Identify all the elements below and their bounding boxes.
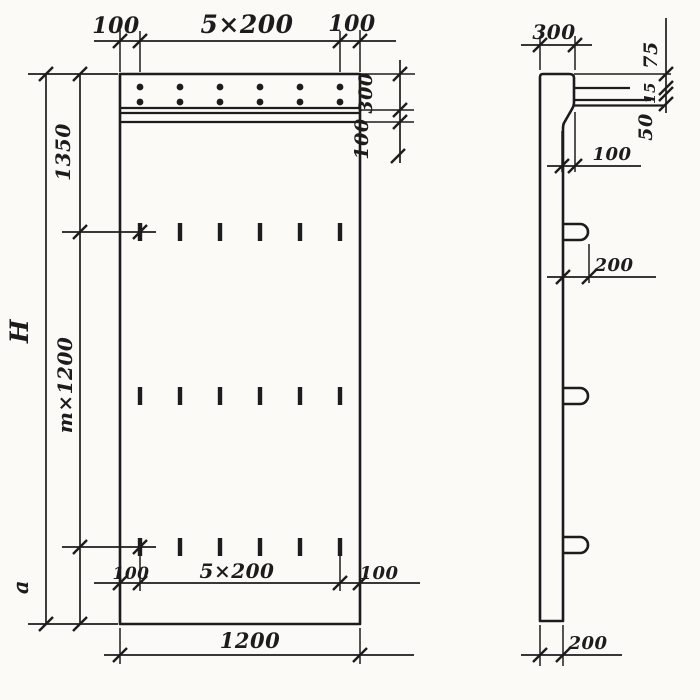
- slot: [298, 223, 302, 241]
- slot-row-1: [138, 223, 342, 241]
- front-view: 100 5×200 100 1350 m×1200 a H 300 100: [5, 10, 420, 664]
- dim-H: H: [5, 318, 34, 344]
- dim-a: a: [8, 580, 33, 594]
- anchor-dot: [297, 99, 304, 106]
- anchor-dot: [137, 99, 144, 106]
- dim-1200: 1200: [220, 628, 280, 653]
- dim-100-strip: 100: [351, 118, 373, 159]
- dim-ledge-100: 100: [592, 144, 631, 165]
- slot-row-2: [138, 387, 342, 405]
- dim-top-left: 100: [92, 13, 140, 39]
- dim-75: 75: [640, 41, 662, 68]
- dim-top-right: 100: [328, 11, 376, 37]
- slot: [218, 387, 222, 405]
- slot: [258, 223, 262, 241]
- side-view: 300 75 15 50 100 200 200: [521, 18, 673, 666]
- dim-bottom-right: 100: [359, 563, 398, 584]
- drawing-sheet: 100 5×200 100 1350 m×1200 a H 300 100: [0, 0, 700, 700]
- dim-bottom-spacing: 5×200: [200, 559, 275, 583]
- anchor-dot: [217, 84, 224, 91]
- slot: [298, 387, 302, 405]
- slot: [178, 538, 182, 556]
- dim-bottom-left: 100: [113, 564, 150, 584]
- anchor-dot: [337, 99, 344, 106]
- slot: [218, 223, 222, 241]
- anchor-dot: [217, 99, 224, 106]
- anchor-dot: [137, 84, 144, 91]
- slot: [178, 387, 182, 405]
- slot: [338, 538, 342, 556]
- anchor-dot: [177, 84, 184, 91]
- anchor-dot: [257, 99, 264, 106]
- profile-outline: [540, 74, 574, 621]
- panel-outline: [120, 74, 360, 624]
- loop-1: [563, 224, 588, 240]
- anchor-dot: [177, 99, 184, 106]
- slot: [258, 387, 262, 405]
- slot: [298, 538, 302, 556]
- dim-loop-200: 200: [593, 255, 633, 276]
- slot: [138, 387, 142, 405]
- panel-working-drawing: 100 5×200 100 1350 m×1200 a H 300 100: [0, 0, 700, 700]
- dim-15: 15: [641, 82, 659, 104]
- anchor-dot: [257, 84, 264, 91]
- slot-row-3: [138, 538, 342, 556]
- anchor-dot-rows: [137, 84, 344, 106]
- slot: [338, 387, 342, 405]
- anchor-dot: [297, 84, 304, 91]
- anchor-dot: [337, 84, 344, 91]
- dim-300-band: 300: [355, 72, 377, 113]
- loop-3: [563, 537, 588, 553]
- dim-1350: 1350: [51, 123, 75, 181]
- loop-2: [563, 388, 588, 404]
- dim-side-300: 300: [532, 20, 575, 44]
- slot: [178, 223, 182, 241]
- dim-m-1200: m×1200: [53, 337, 77, 434]
- slot: [258, 538, 262, 556]
- dim-top-spacing: 5×200: [200, 10, 293, 39]
- slot: [338, 223, 342, 241]
- slot: [218, 538, 222, 556]
- tick: [391, 149, 405, 163]
- dim-thickness-200: 200: [567, 633, 607, 654]
- dim-50: 50: [635, 113, 657, 140]
